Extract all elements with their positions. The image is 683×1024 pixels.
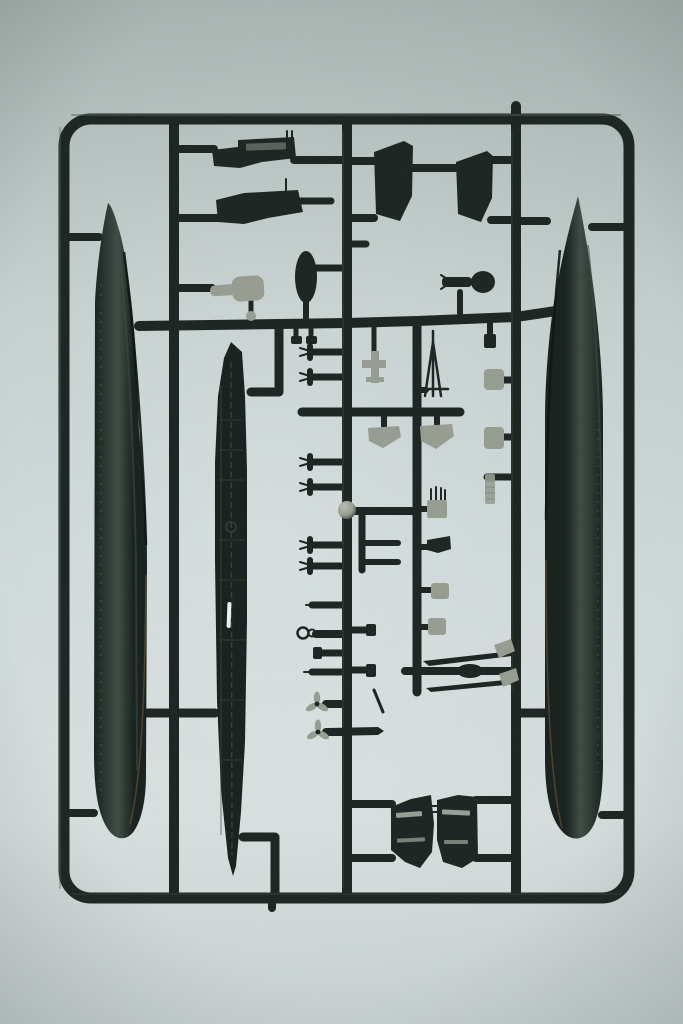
photo-vignette bbox=[0, 0, 683, 1024]
photo-of-model-sprue bbox=[0, 0, 683, 1024]
sprue-photo-canvas bbox=[0, 0, 683, 1024]
